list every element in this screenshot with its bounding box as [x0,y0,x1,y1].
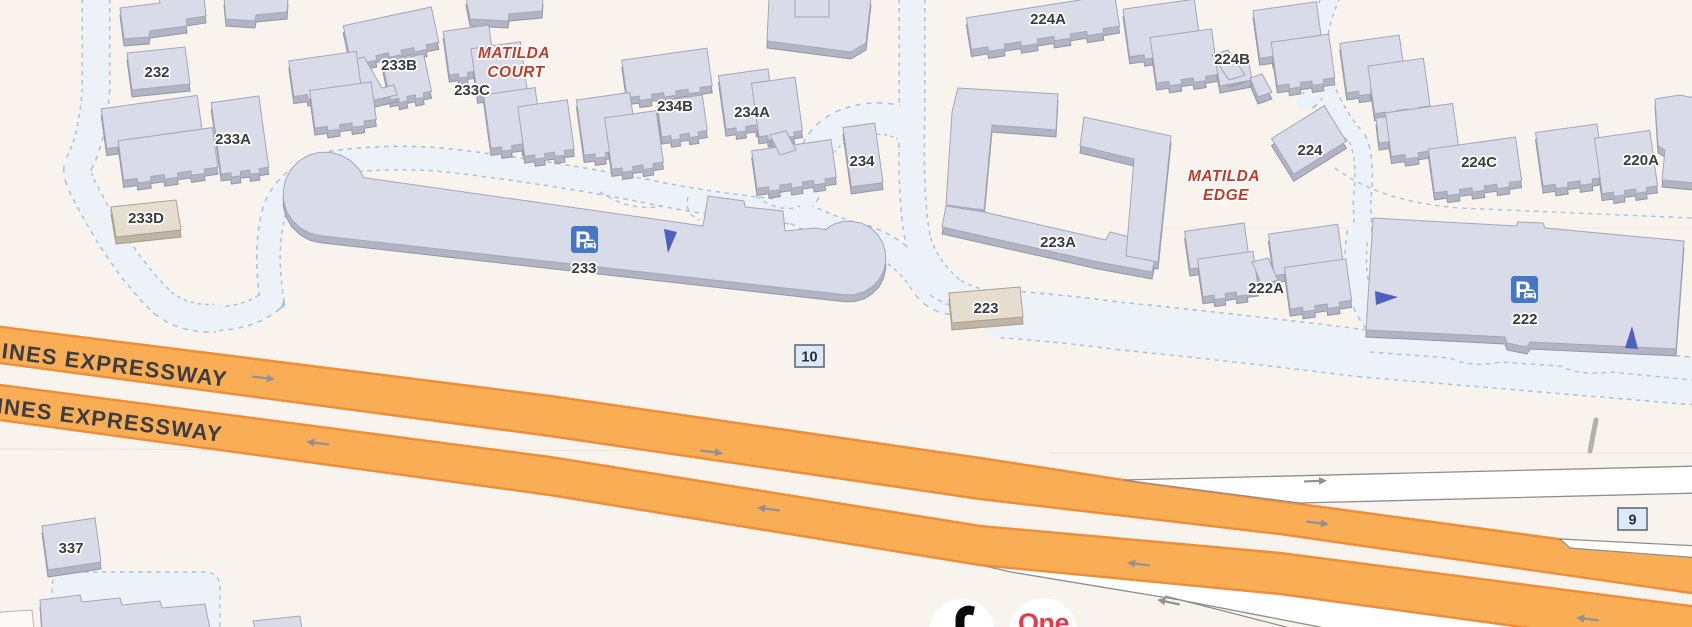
svg-text:MATILDA: MATILDA [478,45,550,62]
svg-text:10: 10 [801,350,817,366]
svg-text:EDGE: EDGE [1203,187,1249,204]
svg-text:222: 222 [1512,311,1537,328]
svg-text:MATILDA: MATILDA [1188,168,1260,185]
svg-text:223: 223 [973,300,998,317]
svg-text:COURT: COURT [487,64,545,81]
svg-text:223A: 223A [1040,234,1076,251]
svg-text:233B: 233B [381,57,417,74]
svg-text:337: 337 [58,540,83,557]
svg-text:224C: 224C [1461,154,1497,171]
svg-text:222A: 222A [1248,280,1284,297]
svg-text:234A: 234A [734,104,770,121]
svg-text:234B: 234B [657,98,693,115]
svg-text:220A: 220A [1623,152,1659,169]
svg-text:232: 232 [144,64,169,81]
svg-text:9: 9 [1628,513,1636,529]
svg-text:233A: 233A [215,131,251,148]
svg-text:One: One [1018,608,1069,627]
svg-text:224A: 224A [1030,11,1066,28]
svg-text:224: 224 [1297,142,1323,159]
svg-text:233: 233 [571,260,596,277]
svg-text:233C: 233C [454,82,490,99]
svg-text:233D: 233D [128,210,164,227]
svg-text:234: 234 [849,153,875,170]
svg-text:224B: 224B [1214,51,1250,68]
